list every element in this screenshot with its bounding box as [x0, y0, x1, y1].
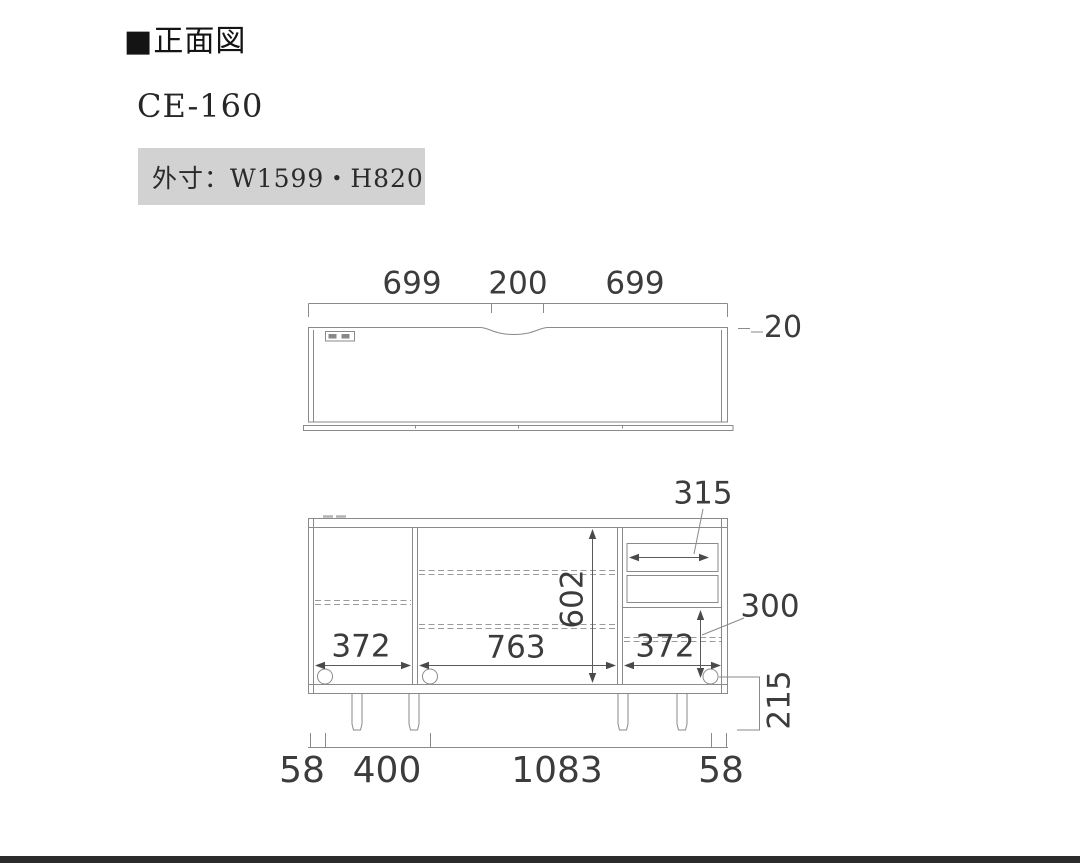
drawer-bottom: [627, 576, 718, 603]
top-width-dimension-line: [309, 304, 728, 318]
top-view-inner-walls: [314, 330, 722, 422]
base-hole-left: [318, 669, 333, 684]
dim-base-offset-left: 58: [279, 753, 325, 789]
dim-top-thickness: 20: [764, 313, 802, 343]
dim-left-section-width: 372: [331, 632, 390, 663]
dim-right-section-width: 372: [635, 632, 694, 663]
control-panel-mark-left: [329, 334, 337, 339]
dim-top-width-right: 699: [605, 269, 664, 300]
dim-top-width-left: 699: [382, 269, 441, 300]
drawing-sheet: ■正面図 CE-160 外寸：W1599・H820: [0, 0, 1080, 863]
front-view-outline: [309, 519, 728, 694]
dim-inner-height: 602: [558, 569, 589, 628]
dim-leg-height: 215: [765, 670, 796, 729]
dim-drawer-inner-width: 315: [673, 479, 732, 510]
open-height-leader: [702, 618, 744, 635]
dim-right-open-height: 300: [740, 592, 799, 623]
dim-top-width-center: 200: [488, 269, 547, 300]
bottom-dimension-line: [308, 733, 728, 748]
leg-1: [352, 694, 362, 730]
dim-leg-span-center: 1083: [511, 753, 603, 789]
control-panel-mark-right: [342, 334, 350, 339]
top-thickness-marks: [738, 329, 763, 333]
front-view-inner-panels: [309, 519, 728, 694]
dim-center-section-width: 763: [486, 633, 545, 664]
bottom-border-bar: [0, 856, 1080, 863]
dim-base-offset-right: 58: [698, 753, 744, 789]
dim-leg-span-left: 400: [353, 753, 422, 789]
drawer-width-leader: [694, 509, 703, 554]
leg-2: [409, 694, 419, 730]
leg-4: [677, 694, 687, 730]
top-view-outline: [309, 328, 728, 423]
leg-3: [618, 694, 628, 730]
base-hole-center: [423, 669, 438, 684]
elevation-drawing: [0, 0, 1080, 863]
top-view-linework: [304, 304, 764, 431]
base-hole-right: [703, 669, 718, 684]
